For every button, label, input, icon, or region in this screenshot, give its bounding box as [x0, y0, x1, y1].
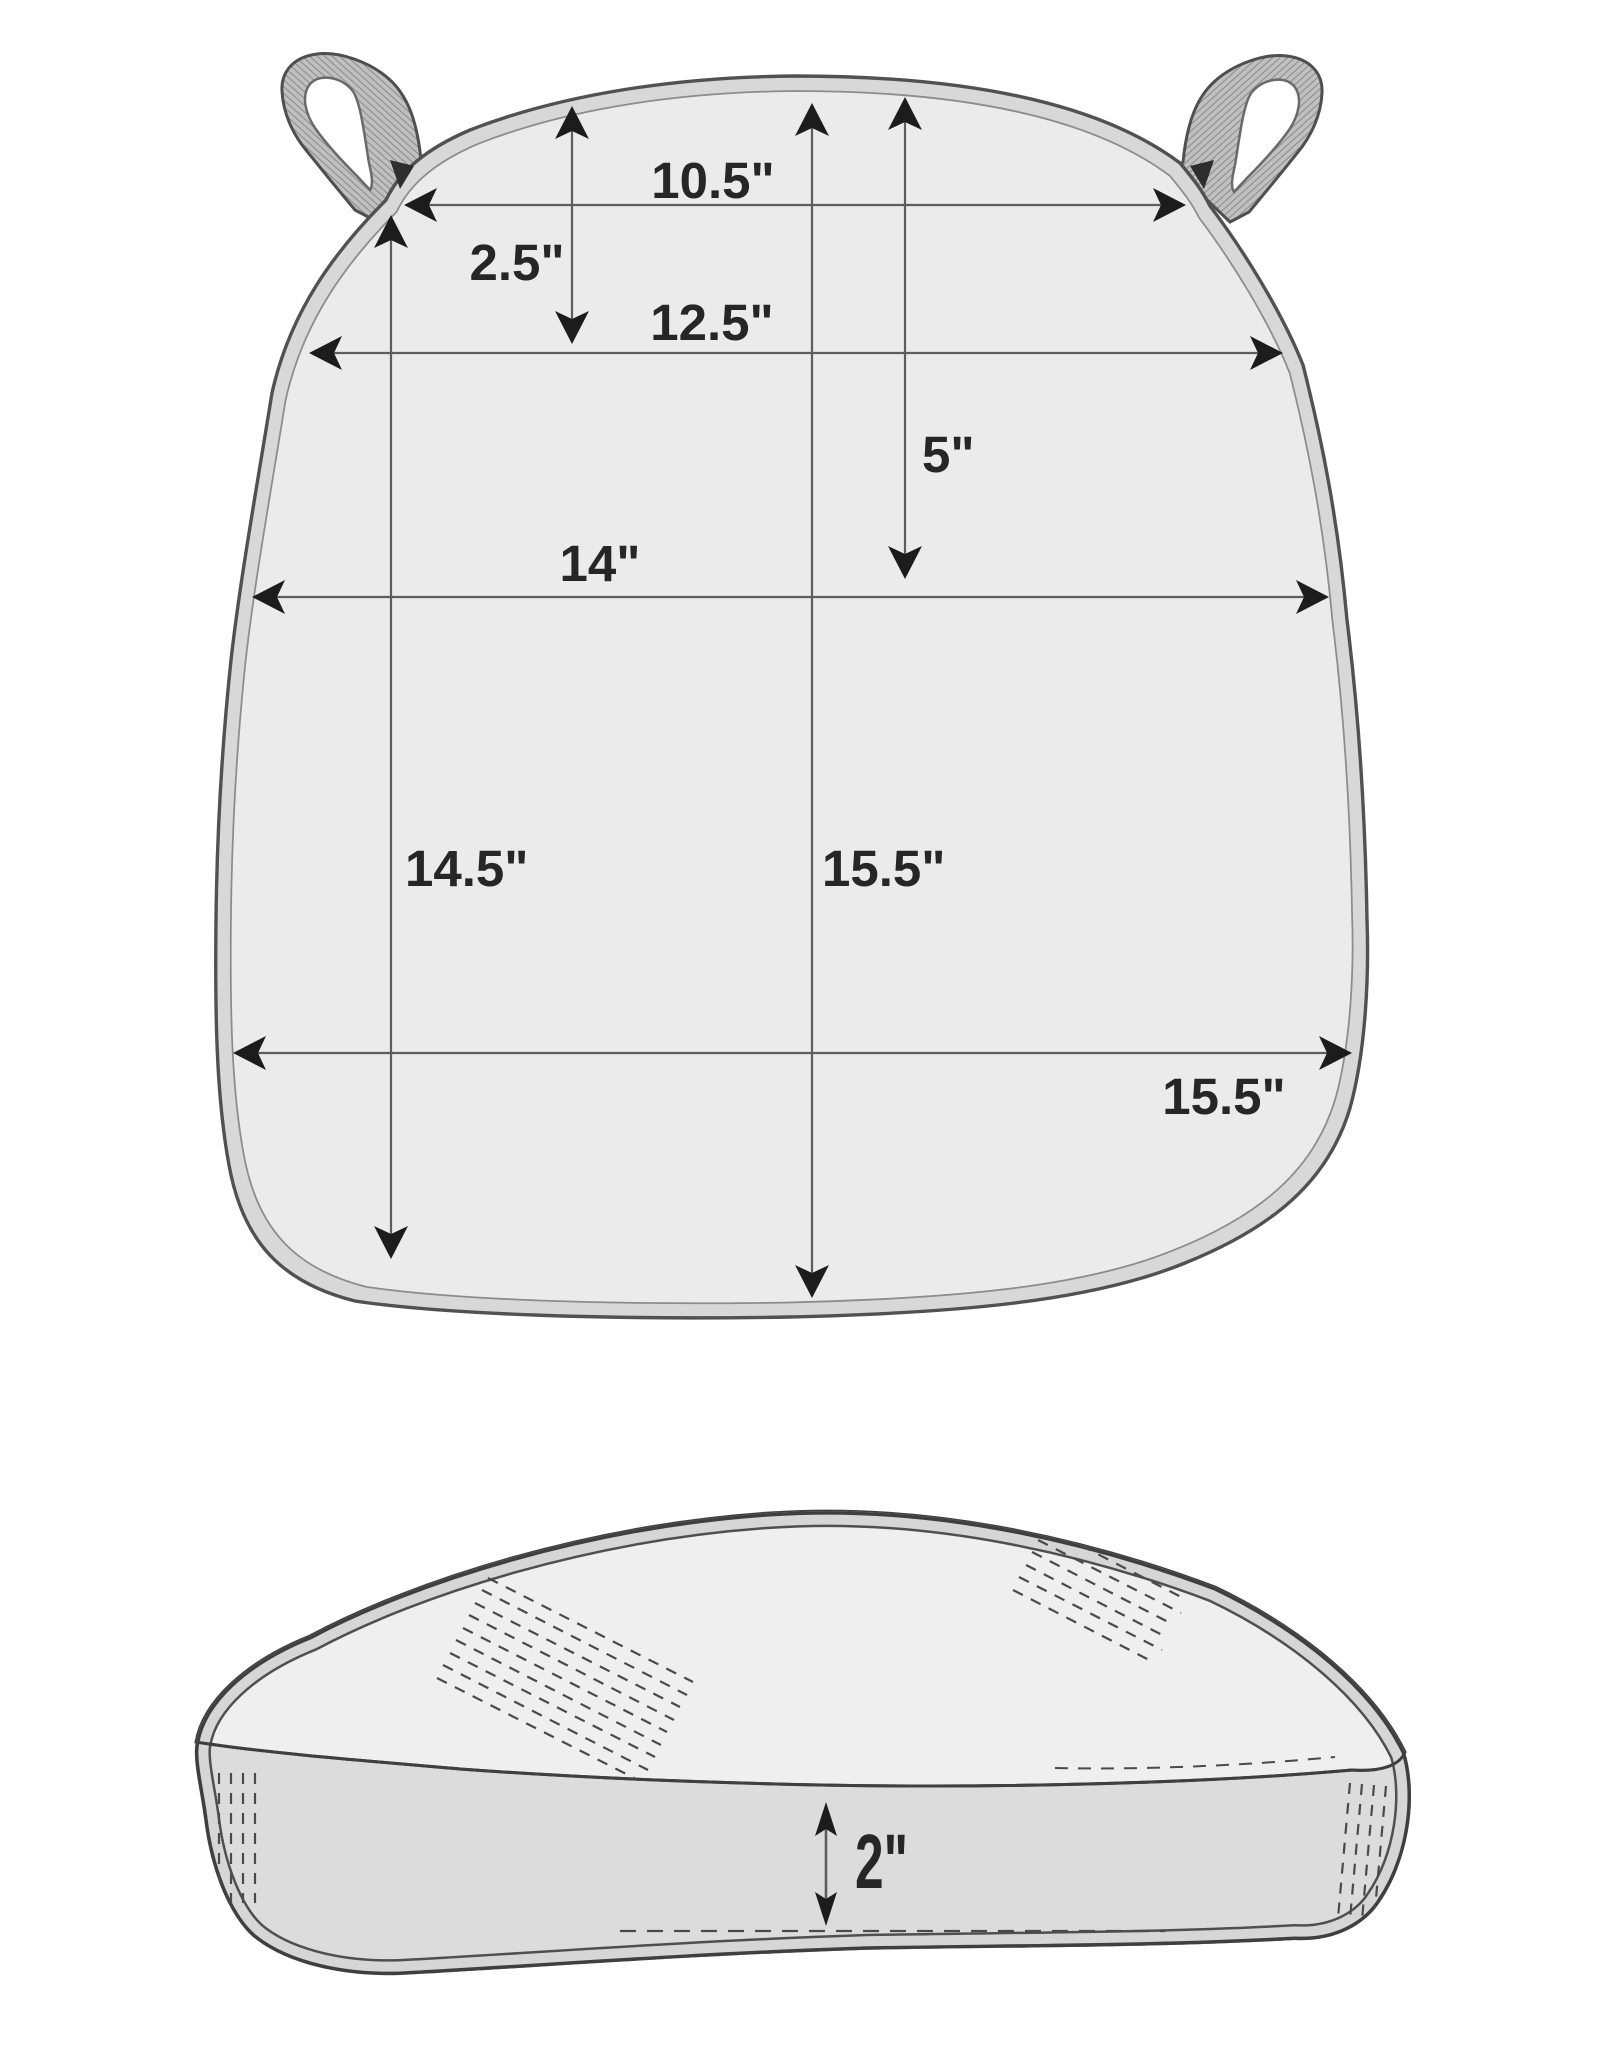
svg-text:10.5": 10.5"	[651, 152, 774, 209]
svg-text:14.5": 14.5"	[405, 840, 528, 897]
svg-text:2.5": 2.5"	[469, 234, 564, 291]
svg-text:15.5": 15.5"	[822, 840, 945, 897]
svg-text:12.5": 12.5"	[650, 294, 773, 351]
svg-text:15.5": 15.5"	[1162, 1068, 1285, 1125]
svg-text:14": 14"	[560, 535, 641, 592]
svg-text:5": 5"	[922, 426, 975, 483]
svg-text:2": 2"	[855, 1819, 908, 1905]
